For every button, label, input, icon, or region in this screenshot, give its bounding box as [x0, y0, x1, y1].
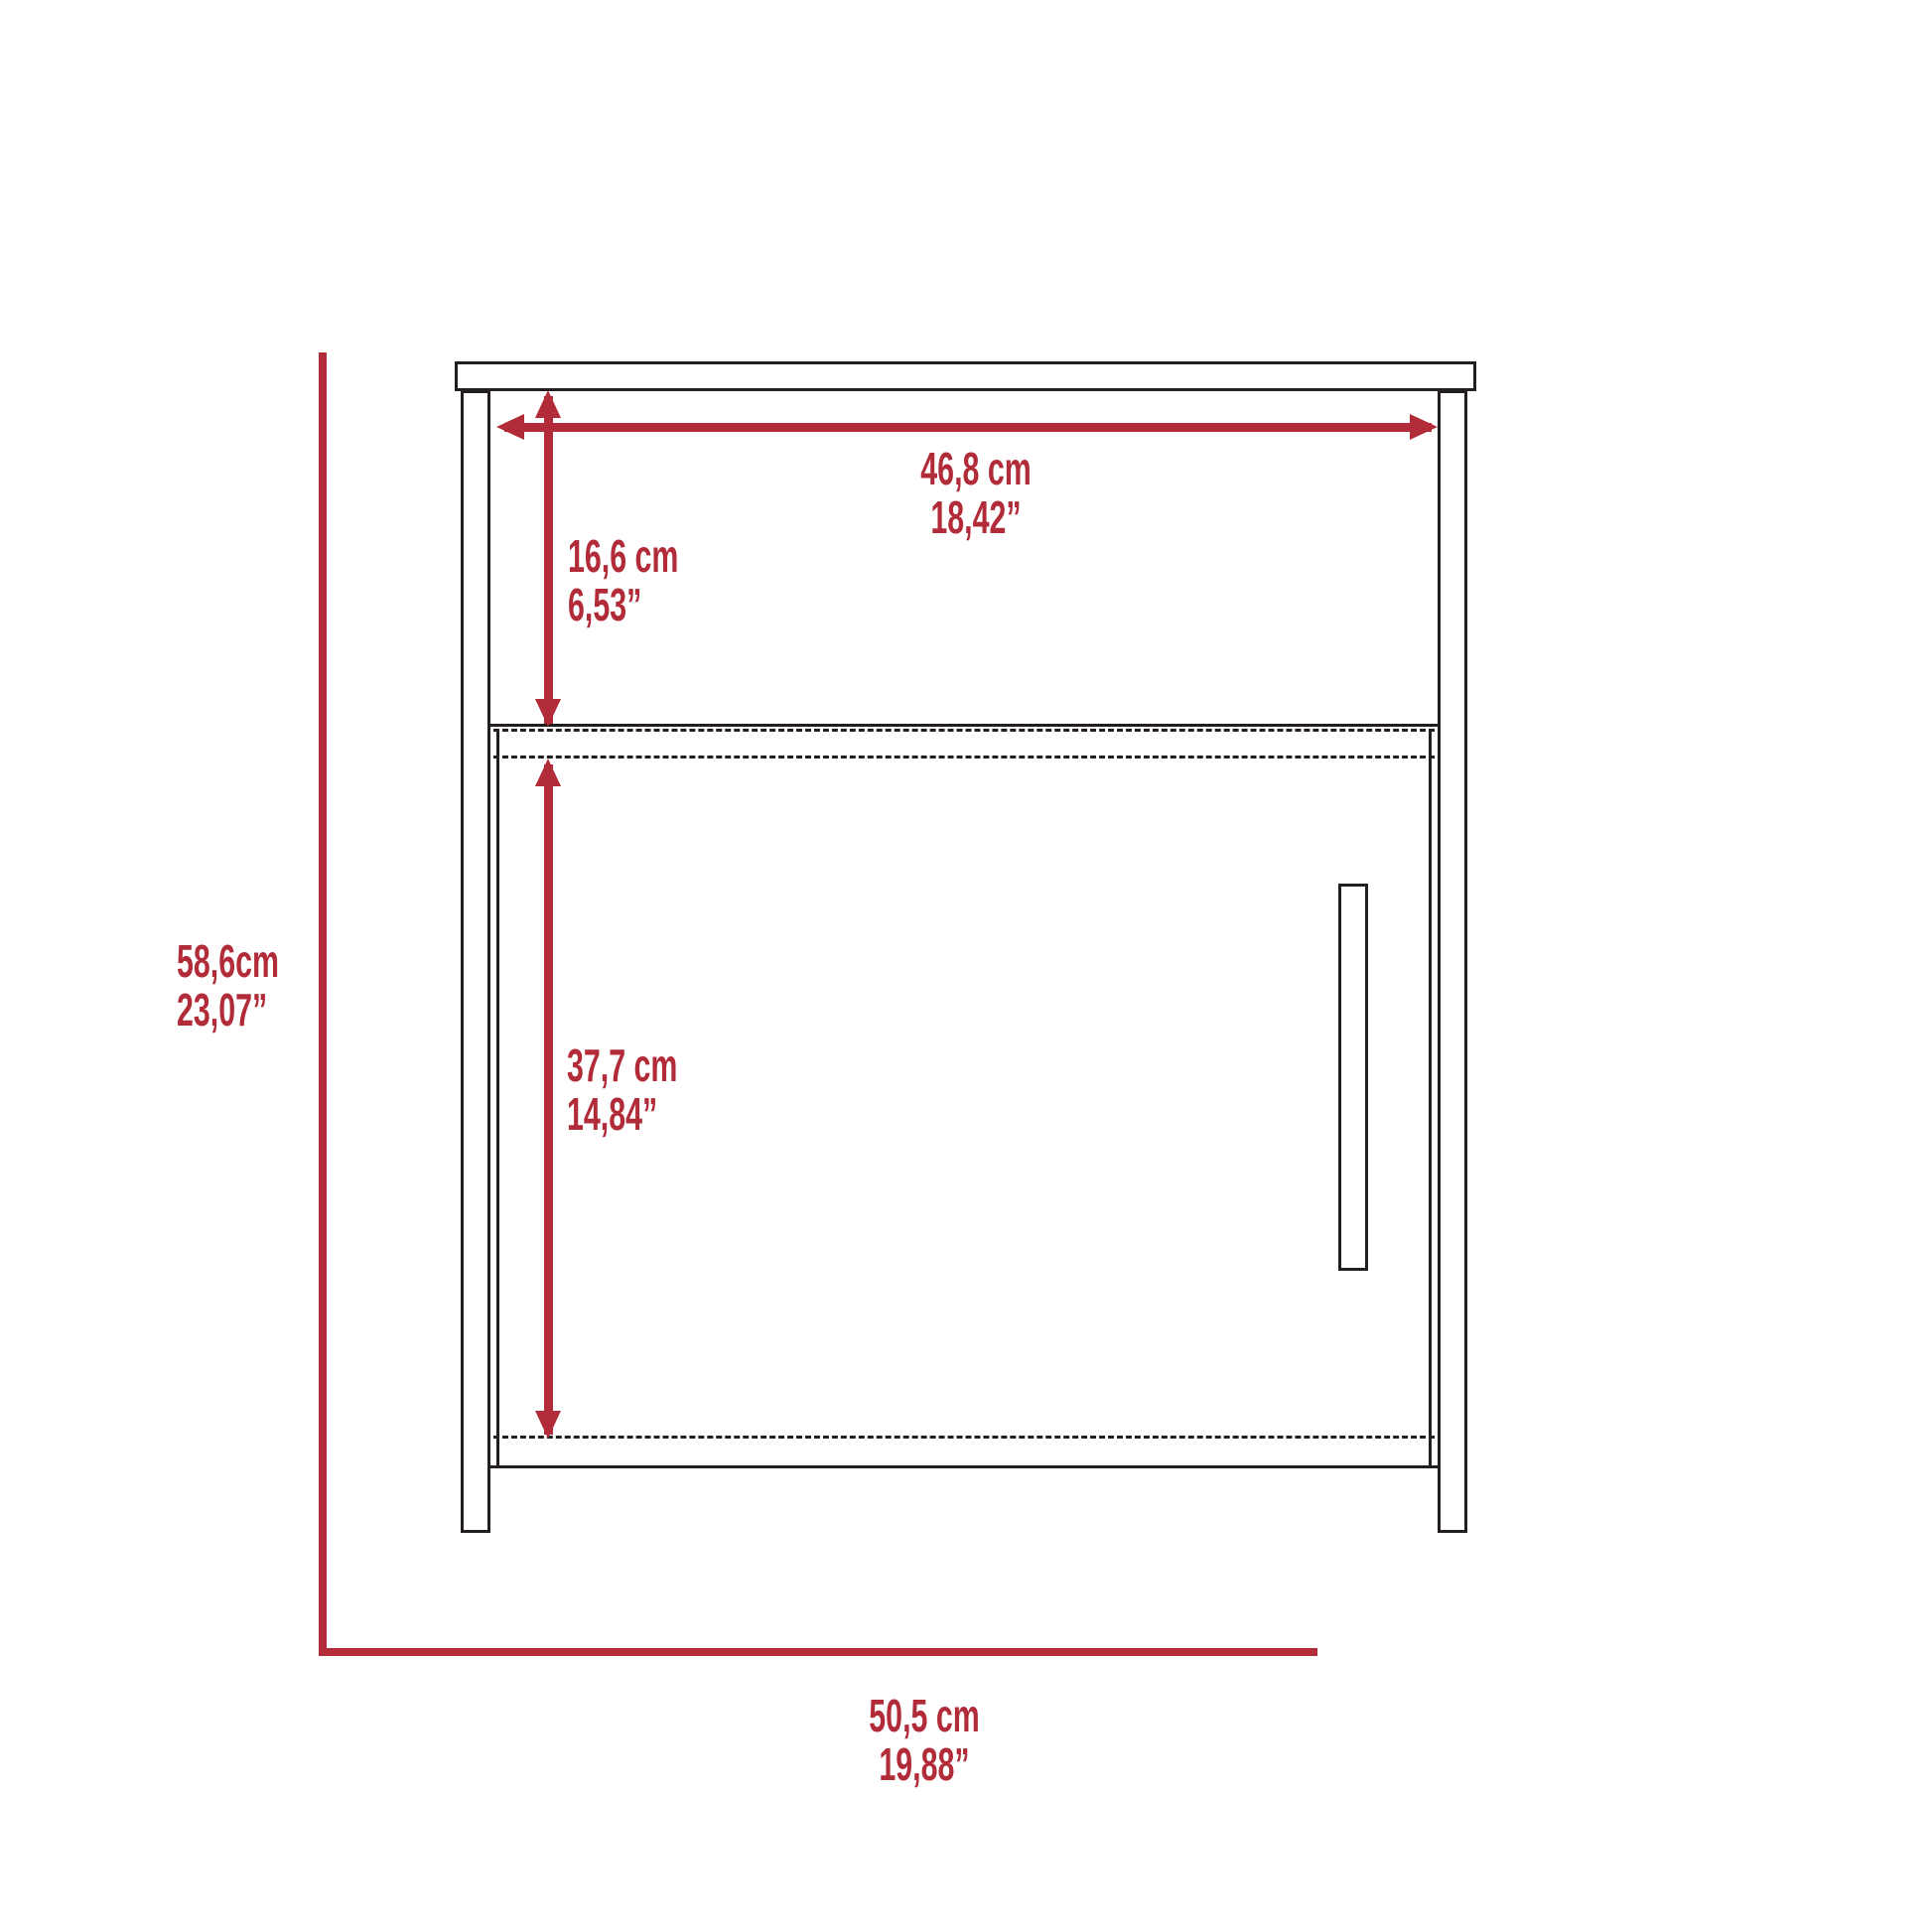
door-height-arrow-up-icon [535, 759, 561, 786]
inner-width-dimension-line [504, 423, 1432, 432]
door-right-edge [1429, 729, 1432, 1468]
overall-height-label: 58,6cm 23,07” [177, 937, 279, 1035]
overall-height-in: 23,07” [177, 986, 279, 1035]
door-height-cm: 37,7 cm [567, 1041, 677, 1090]
inner-width-cm: 46,8 cm [920, 445, 1031, 493]
shelf-height-arrow-up-icon [535, 390, 561, 418]
door-bottom-hidden-line [493, 1436, 1435, 1439]
dimension-diagram: 46,8 cm 18,42” 16,6 cm 6,53” 37,7 cm 14,… [0, 0, 1932, 1932]
overall-width-in: 19,88” [869, 1740, 979, 1789]
inner-width-arrow-right-icon [1410, 414, 1438, 440]
shelf-hidden-line [493, 729, 1435, 732]
shelf-height-in: 6,53” [568, 581, 678, 629]
shelf-height-arrow-down-icon [535, 699, 561, 727]
overall-width-cm: 50,5 cm [869, 1692, 979, 1740]
door-top-hidden-line [493, 756, 1435, 759]
door-handle [1338, 884, 1368, 1271]
shelf-height-label: 16,6 cm 6,53” [568, 532, 678, 629]
overall-height-bracket-line [319, 352, 327, 1656]
cabinet-bottom-rail [490, 1465, 1438, 1468]
cabinet-top-panel [455, 361, 1476, 391]
cabinet-left-leg [461, 390, 490, 1533]
overall-width-label: 50,5 cm 19,88” [869, 1692, 979, 1789]
door-left-edge [496, 729, 499, 1468]
shelf-height-cm: 16,6 cm [568, 532, 678, 581]
inner-width-arrow-left-icon [496, 414, 524, 440]
door-height-arrow-down-icon [535, 1411, 561, 1439]
overall-width-bracket-line [319, 1648, 1317, 1656]
door-height-label: 37,7 cm 14,84” [567, 1041, 677, 1139]
door-height-in: 14,84” [567, 1090, 677, 1139]
shelf-front-line [490, 724, 1438, 727]
door-height-dimension-line [544, 764, 553, 1435]
cabinet-right-leg [1438, 390, 1467, 1533]
overall-height-cm: 58,6cm [177, 937, 279, 986]
inner-width-in: 18,42” [920, 493, 1031, 542]
shelf-height-dimension-line [544, 396, 553, 724]
inner-width-label: 46,8 cm 18,42” [920, 445, 1031, 542]
